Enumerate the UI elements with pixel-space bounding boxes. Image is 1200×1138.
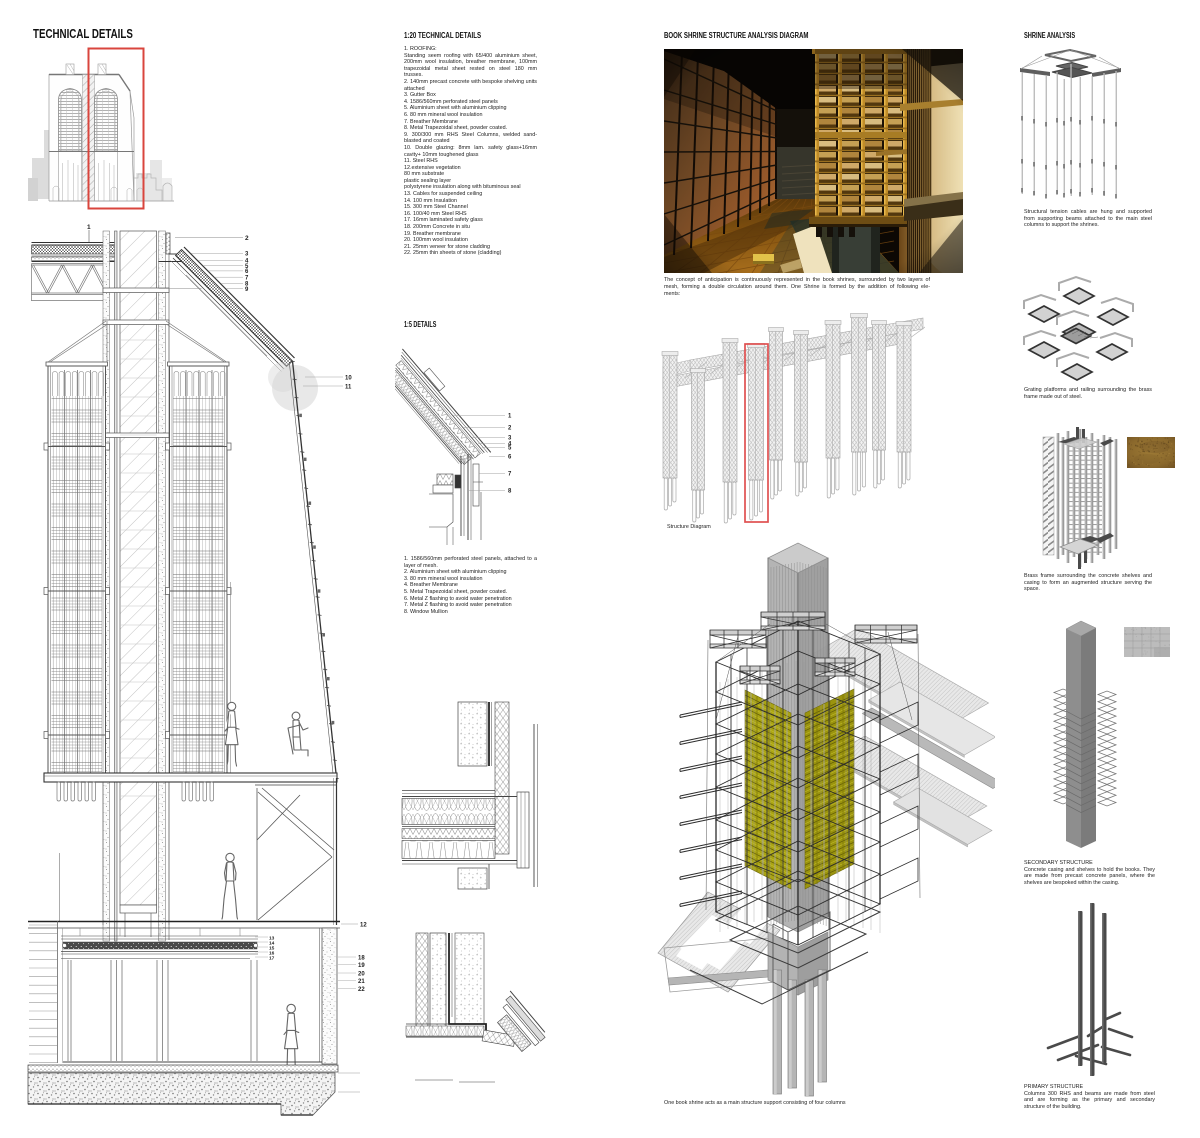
svg-text:11: 11 xyxy=(345,385,352,391)
svg-text:21: 21 xyxy=(358,979,365,985)
svg-text:8: 8 xyxy=(508,489,512,495)
svg-text:1: 1 xyxy=(508,414,512,420)
svg-text:3: 3 xyxy=(245,252,249,258)
svg-text:18: 18 xyxy=(358,955,365,961)
svg-text:7: 7 xyxy=(508,472,512,478)
svg-text:17: 17 xyxy=(269,955,275,961)
svg-text:6: 6 xyxy=(508,455,512,461)
svg-text:1: 1 xyxy=(87,224,91,231)
svg-text:22: 22 xyxy=(358,987,365,993)
svg-text:6: 6 xyxy=(245,269,249,275)
svg-text:20: 20 xyxy=(358,971,365,977)
svg-text:9: 9 xyxy=(245,287,249,293)
svg-text:12: 12 xyxy=(360,923,367,929)
svg-text:10: 10 xyxy=(345,376,352,382)
svg-text:7: 7 xyxy=(245,275,249,281)
svg-text:5: 5 xyxy=(508,446,512,452)
svg-text:2: 2 xyxy=(245,235,249,242)
svg-text:19: 19 xyxy=(358,963,365,969)
svg-text:2: 2 xyxy=(508,426,512,432)
